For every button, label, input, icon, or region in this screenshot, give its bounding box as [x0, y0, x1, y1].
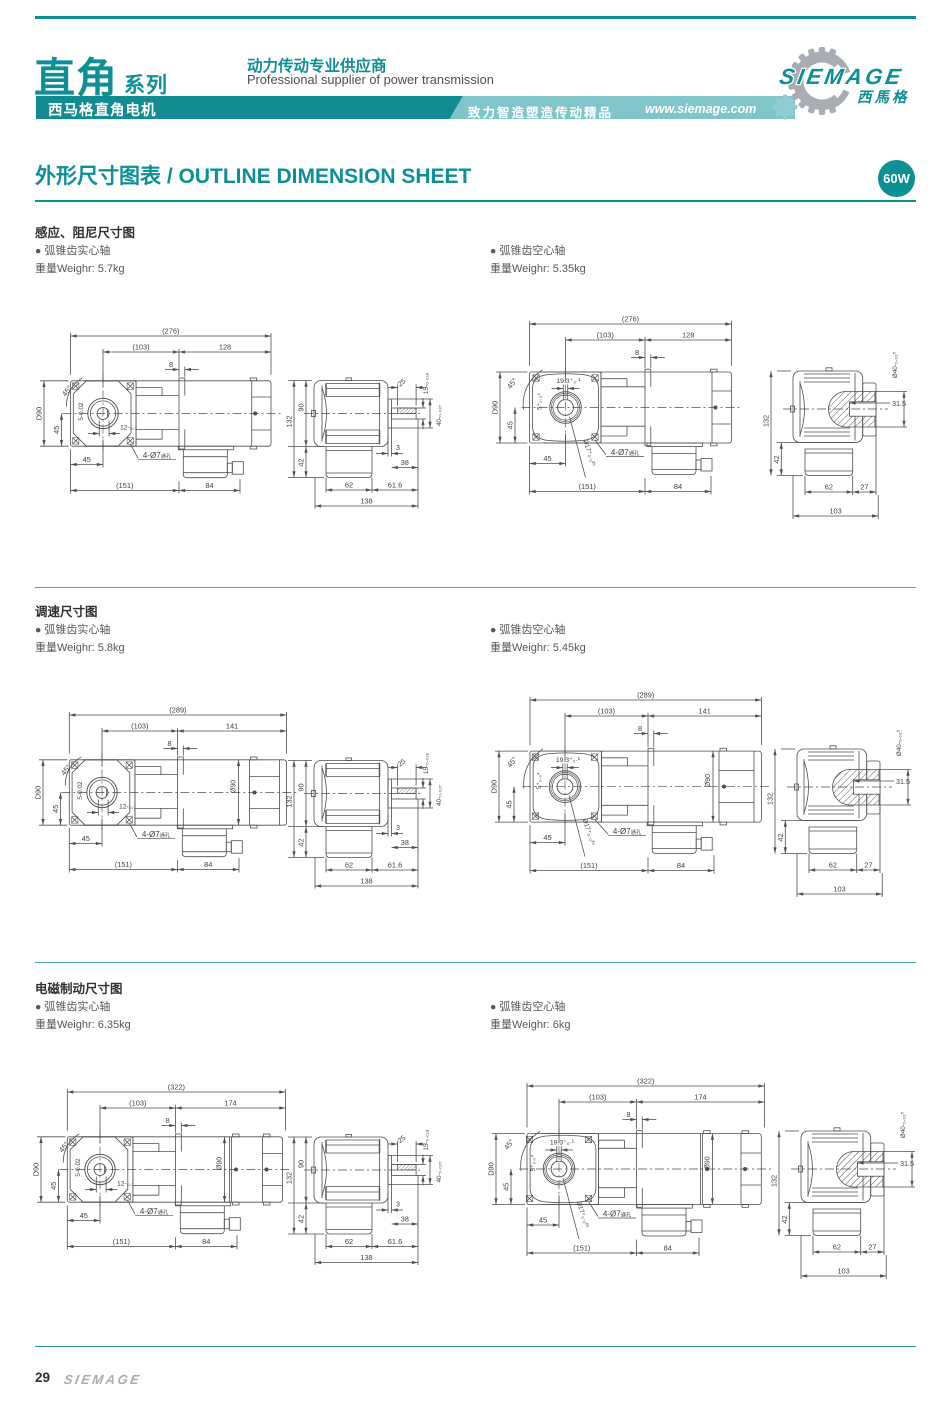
svg-text:5⁺₀.₀⁴: 5⁺₀.₀⁴ [536, 772, 543, 789]
svg-text:D90: D90 [32, 1163, 41, 1177]
svg-text:45: 45 [82, 834, 90, 843]
svg-text:141: 141 [699, 707, 711, 716]
svg-text:61.6: 61.6 [388, 1237, 402, 1246]
svg-text:5⁺₀.₀⁴: 5⁺₀.₀⁴ [537, 393, 544, 410]
svg-text:3: 3 [396, 1202, 400, 1209]
svg-text:5-0.02: 5-0.02 [75, 1158, 82, 1177]
svg-text:(151): (151) [573, 1244, 590, 1253]
svg-text:Ø90: Ø90 [704, 1156, 711, 1169]
svg-text:138: 138 [360, 877, 372, 886]
svg-text:84: 84 [677, 861, 685, 870]
svg-text:(103): (103) [589, 1093, 606, 1102]
svg-text:90: 90 [297, 403, 306, 411]
svg-text:61.6: 61.6 [388, 861, 402, 870]
svg-text:(322): (322) [637, 1077, 654, 1086]
svg-text:84: 84 [674, 482, 682, 491]
svg-text:4-Ø7通孔: 4-Ø7通孔 [143, 451, 172, 460]
svg-text:8: 8 [638, 724, 642, 733]
svg-text:(151): (151) [113, 1237, 130, 1246]
svg-text:8: 8 [626, 1110, 630, 1119]
svg-text:132: 132 [770, 1175, 779, 1187]
svg-text:45: 45 [52, 426, 61, 434]
svg-text:62: 62 [825, 483, 833, 492]
svg-text:(103): (103) [132, 343, 149, 352]
svg-text:128: 128 [682, 331, 694, 340]
svg-text:84: 84 [202, 1237, 210, 1246]
svg-text:132: 132 [285, 415, 294, 427]
svg-text:8: 8 [165, 1116, 169, 1125]
svg-text:4-Ø7通孔: 4-Ø7通孔 [611, 448, 640, 457]
svg-text:45: 45 [505, 800, 514, 808]
svg-text:(322): (322) [168, 1083, 185, 1092]
svg-text:8: 8 [635, 348, 639, 357]
svg-text:62: 62 [345, 1237, 353, 1246]
svg-text:62: 62 [829, 861, 837, 870]
svg-text:84: 84 [205, 481, 213, 490]
svg-text:(103): (103) [131, 722, 148, 731]
svg-text:Ø90: Ø90 [217, 1157, 224, 1170]
svg-text:D90: D90 [491, 401, 500, 415]
svg-text:27: 27 [868, 1243, 876, 1252]
svg-text:Ø40-₀.₀₂⁵: Ø40-₀.₀₂⁵ [896, 729, 903, 756]
svg-text:Ø40-₀.₀₂⁵: Ø40-₀.₀₂⁵ [892, 351, 899, 378]
svg-text:(276): (276) [622, 315, 639, 324]
svg-text:84: 84 [664, 1244, 672, 1253]
svg-text:3: 3 [396, 825, 400, 832]
svg-text:27: 27 [864, 861, 872, 870]
svg-text:(289): (289) [637, 691, 654, 700]
svg-text:(151): (151) [579, 482, 596, 491]
svg-text:15-₀.₀₁₈: 15-₀.₀₁₈ [423, 1129, 430, 1150]
svg-text:45°: 45° [505, 755, 519, 769]
svg-text:19.3⁺₀·¹: 19.3⁺₀·¹ [556, 378, 581, 385]
svg-text:8: 8 [169, 360, 173, 369]
svg-text:4-Ø7通孔: 4-Ø7通孔 [613, 827, 642, 836]
svg-text:174: 174 [694, 1093, 706, 1102]
svg-text:138: 138 [360, 1253, 372, 1262]
svg-text:103: 103 [837, 1267, 849, 1276]
svg-text:38: 38 [401, 458, 409, 467]
svg-text:84: 84 [204, 860, 212, 869]
svg-text:(103): (103) [597, 331, 614, 340]
svg-text:8: 8 [167, 739, 171, 748]
svg-text:Ø90: Ø90 [705, 774, 712, 787]
svg-text:62: 62 [345, 481, 353, 490]
svg-text:(289): (289) [169, 706, 186, 715]
svg-text:Ø40-₀.₀₂⁵: Ø40-₀.₀₂⁵ [900, 1111, 907, 1138]
svg-text:45: 45 [539, 1216, 547, 1225]
svg-text:45: 45 [543, 454, 551, 463]
svg-text:174: 174 [224, 1099, 236, 1108]
svg-text:(151): (151) [115, 860, 132, 869]
svg-text:40-₀.₀₂₇: 40-₀.₀₂₇ [436, 1162, 443, 1183]
svg-text:5-0.02: 5-0.02 [78, 402, 85, 421]
svg-text:Ø90: Ø90 [231, 780, 238, 793]
svg-text:132: 132 [285, 1172, 294, 1184]
svg-text:132: 132 [766, 793, 775, 805]
svg-text:D90: D90 [34, 786, 43, 800]
svg-text:(103): (103) [129, 1099, 146, 1108]
svg-text:3: 3 [396, 445, 400, 452]
svg-text:42: 42 [772, 455, 781, 463]
svg-text:42: 42 [297, 458, 306, 466]
svg-text:19.3⁺₀·¹: 19.3⁺₀·¹ [550, 1140, 575, 1147]
svg-text:38: 38 [401, 838, 409, 847]
svg-text:132: 132 [762, 415, 771, 427]
svg-text:141: 141 [226, 722, 238, 731]
svg-text:138: 138 [360, 497, 372, 506]
svg-text:5-0.02: 5-0.02 [77, 781, 84, 800]
svg-text:45: 45 [83, 455, 91, 464]
svg-text:4-Ø7通孔: 4-Ø7通孔 [603, 1210, 632, 1219]
svg-text:19.3⁺₀·¹: 19.3⁺₀·¹ [556, 757, 581, 764]
svg-text:62: 62 [345, 861, 353, 870]
svg-text:(276): (276) [162, 327, 179, 336]
svg-text:103: 103 [833, 885, 845, 894]
svg-text:42: 42 [297, 1215, 306, 1223]
svg-text:(151): (151) [116, 481, 133, 490]
svg-text:45: 45 [49, 1182, 58, 1190]
svg-text:12-₀.₁: 12-₀.₁ [119, 804, 137, 811]
svg-text:38: 38 [401, 1215, 409, 1224]
svg-text:27: 27 [860, 483, 868, 492]
svg-text:45: 45 [51, 805, 60, 813]
svg-text:D90: D90 [487, 1162, 496, 1176]
svg-text:40-₀.₀₂₇: 40-₀.₀₂₇ [436, 785, 443, 806]
svg-text:D90: D90 [490, 780, 499, 794]
svg-text:4-Ø7通孔: 4-Ø7通孔 [142, 830, 171, 839]
svg-text:(151): (151) [580, 861, 597, 870]
svg-text:132: 132 [285, 795, 294, 807]
svg-text:D90: D90 [35, 407, 44, 421]
svg-text:128: 128 [219, 343, 231, 352]
svg-text:45°: 45° [502, 1137, 516, 1151]
svg-text:40-₀.₀₂₇: 40-₀.₀₂₇ [436, 405, 443, 426]
svg-text:61.6: 61.6 [388, 481, 402, 490]
svg-text:42: 42 [776, 833, 785, 841]
svg-text:15-₀.₀₁₈: 15-₀.₀₁₈ [423, 753, 430, 774]
svg-text:45°: 45° [57, 1140, 71, 1154]
svg-text:25: 25 [397, 378, 408, 388]
svg-text:103: 103 [829, 507, 841, 516]
svg-text:45: 45 [506, 421, 515, 429]
svg-text:12-₀.₁: 12-₀.₁ [117, 1181, 135, 1188]
svg-text:45: 45 [543, 833, 551, 842]
svg-text:62: 62 [833, 1243, 841, 1252]
svg-text:90: 90 [297, 1160, 306, 1168]
svg-text:45°: 45° [505, 376, 519, 390]
svg-text:25: 25 [397, 758, 408, 768]
svg-text:(103): (103) [598, 707, 615, 716]
svg-text:4-Ø7通孔: 4-Ø7通孔 [140, 1207, 169, 1216]
svg-text:25: 25 [397, 1135, 408, 1145]
svg-text:42: 42 [297, 838, 306, 846]
svg-text:42: 42 [780, 1215, 789, 1223]
svg-text:45: 45 [502, 1183, 511, 1191]
svg-text:45: 45 [80, 1211, 88, 1220]
svg-text:12-₀.₁: 12-₀.₁ [120, 425, 138, 432]
svg-text:15-₀.₀₁₈: 15-₀.₀₁₈ [423, 373, 430, 394]
svg-text:45°: 45° [60, 384, 74, 398]
svg-text:45°: 45° [59, 763, 73, 777]
svg-text:90: 90 [297, 783, 306, 791]
svg-text:5⁺₀.₀⁴: 5⁺₀.₀⁴ [530, 1154, 537, 1171]
